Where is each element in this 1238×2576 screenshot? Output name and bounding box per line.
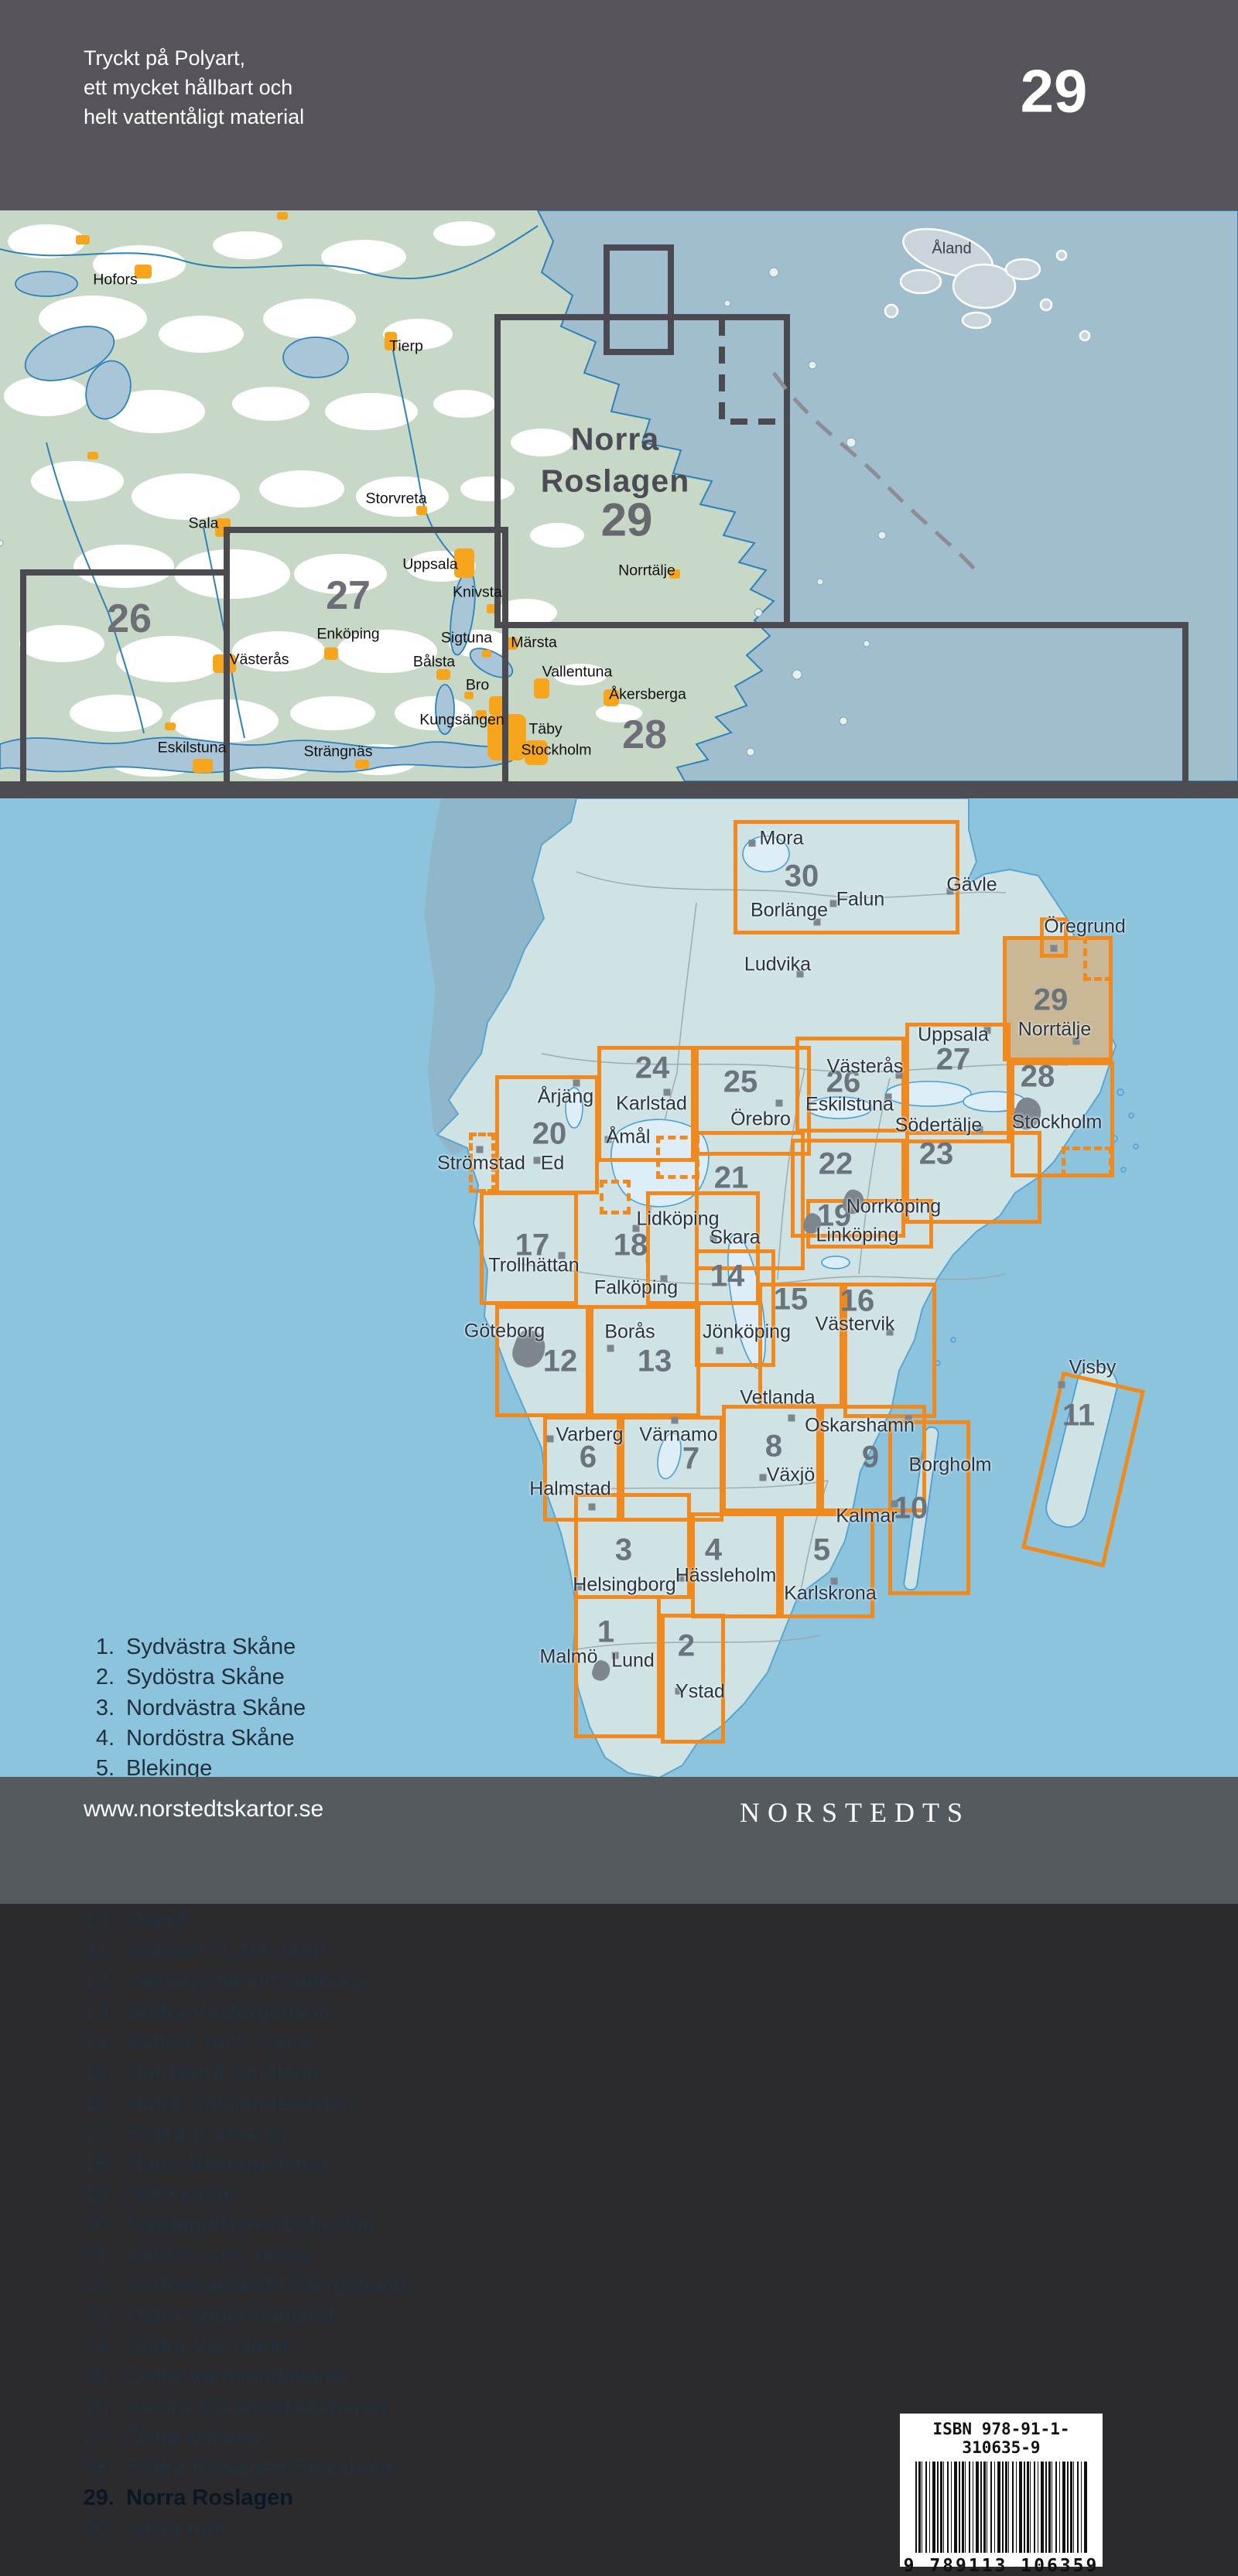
city-label: Göteborg [464,1320,545,1343]
index-item: 22.Södermanland/Östergötland [74,2270,477,2301]
index-number: 15. [74,2060,115,2086]
index-name: Vättern runt, norra [126,2243,308,2268]
index-number: 22. [74,2273,115,2298]
city-marker [1051,945,1058,952]
index-name: Nordvästra Skåne [126,1696,306,1721]
city-label: Uppsala [918,1024,989,1047]
city-label: Trollhättan [488,1255,579,1277]
city-label: Ludvika [744,954,811,976]
index-number: 2. [74,1665,115,1690]
index-item: 30.Siljan runt [74,2514,477,2544]
index-item: 17.Södra Bohuslän [74,2119,477,2149]
coverage-box-21-inset [600,1180,631,1215]
index-name: Göta kanal [126,2181,234,2207]
material-note-line: Tryckt på Polyart, [84,43,304,73]
city-label: Kalmar [836,1505,897,1528]
city-label: Malmö [539,1646,597,1669]
coverage-number: 15 [774,1283,809,1317]
city-label: Öregrund [1044,916,1126,938]
material-note-line: ett mycket hållbart och [84,73,304,102]
city-label: Södertälje [895,1115,983,1137]
city-label: Ystad [675,1681,725,1703]
city-marker [607,1345,614,1352]
coverage-number: 14 [710,1259,745,1294]
index-name: Östra Värmland/Närke [126,2364,350,2390]
city-label: Växjö [767,1464,816,1487]
detail-map: HoforsTierpStorvretaSalaUppsalaNorrtälje… [0,210,1238,781]
city-label: Åmål [607,1126,651,1149]
index-name: Södra Roslagen/Stockholm [126,2455,398,2481]
barcode-image [915,2462,1087,2553]
city-label: Hässleholm [675,1565,777,1587]
coverage-number: 18 [614,1228,648,1263]
city-marker [788,1415,795,1422]
coverage-number: 2 [678,1629,695,1664]
divider-strip [0,781,1238,798]
overview-map: 3029282726252423222120191817161514131211… [0,798,1238,1777]
isbn-block: ISBN 978-91-1-310635-9 9 789113 106359 [900,2414,1103,2567]
index-item: 16.Norra Smålandskusten [74,2088,477,2118]
index-name: Gotland (1:100 000) [126,1939,326,1964]
index-name: Nordöstra Småland [126,2060,320,2086]
index-name: Södra Bohuslän [126,2121,286,2147]
index-item: 24.Södra Värmland [74,2332,477,2362]
index-name: Vättern runt, södra [126,2030,312,2055]
city-marker [547,1436,554,1443]
city-label: Oskarshamn [805,1415,915,1437]
index-item: 15.Nordöstra Småland [74,2058,477,2088]
coverage-number: 28 [1021,1060,1055,1095]
index-name: Sydöstra Skåne [126,1665,285,1690]
city-label: Varberg [556,1424,623,1447]
city-label: Borås [604,1321,655,1344]
index-item: 25.Östra Värmland/Närke [74,2362,477,2392]
index-item: 4.Nordöstra Skåne [74,1724,477,1754]
coverage-number: 23 [919,1137,954,1172]
index-number: 20. [74,2212,115,2238]
coverage-number: 21 [714,1161,749,1196]
index-name: Västra Mälaren/Hjälmaren [126,2395,387,2421]
index-name: Sydvästra Skåne [126,1635,296,1660]
index-number: 29. [74,2485,115,2511]
map-number: 29 [1021,56,1088,127]
index-name: Östra Mälaren [126,2425,268,2451]
city-label: Halmstad [529,1478,611,1501]
index-number: 17. [74,2121,115,2147]
overview-overlays: 3029282726252423222120191817161514131211… [0,798,1238,1777]
coverage-number: 29 [1034,983,1069,1018]
index-item: 1.Sydvästra Skåne [74,1632,477,1662]
index-number: 25. [74,2364,115,2390]
index-number: 14. [74,2030,115,2055]
coverage-number: 27 [936,1043,971,1078]
index-name: Norra Smålandskusten [126,2091,354,2116]
index-number: 18. [74,2151,115,2177]
detail-map-art [0,210,1238,781]
index-item: 11.Gotland (1:100 000) [74,1936,477,1966]
index-number: 13. [74,2000,115,2025]
city-label: Karlstad [616,1093,687,1115]
city-label: Vetlanda [740,1387,815,1409]
city-label: Karlskrona [784,1583,877,1605]
index-item: 21.Vättern runt, norra [74,2240,477,2270]
index-number: 28. [74,2455,115,2481]
index-item: 18.Norra Västergötland [74,2149,477,2179]
coverage-box-29-inset [1083,936,1113,981]
index-number: 12. [74,1969,115,1994]
coverage-number: 12 [543,1344,578,1379]
index-name: Norra Västergötland [126,2151,327,2177]
city-label: Borgholm [909,1454,992,1477]
material-note-line: helt vattentåligt material [84,102,304,132]
index-item: 29.Norra Roslagen [74,2483,477,2513]
index-item: 12.Västergötland/Göteborg [74,1966,477,1997]
coverage-number: 22 [819,1147,853,1182]
index-name: Södra Värmland [126,2334,289,2359]
city-label: Strömstad [437,1153,525,1175]
index-name: Södra Västergötland [126,2000,330,2025]
index-item: 2.Sydöstra Skåne [74,1662,477,1693]
map-index-list: 1.Sydvästra Skåne2.Sydöstra Skåne3.Nordv… [74,1632,477,2544]
city-label: Västerås [827,1056,904,1078]
city-label: Ed [541,1153,565,1175]
index-name: Östra Södermanland [126,2304,333,2329]
city-marker [672,1417,679,1424]
city-label: Jönköping [703,1321,791,1344]
city-marker [534,1157,541,1164]
index-number: 1. [74,1635,115,1660]
index-item: 14.Vättern runt, södra [74,2028,477,2058]
city-label: Borlänge [751,900,828,922]
index-name: Nordöstra Skåne [126,1726,295,1751]
coverage-number: 7 [682,1442,699,1477]
coverage-number: 3 [615,1533,632,1568]
city-label: Falun [836,889,885,911]
coverage-number: 1 [597,1615,614,1650]
top-band: Tryckt på Polyart,ett mycket hållbart oc… [0,0,1238,210]
index-number: 10. [74,1908,115,1934]
index-item: 10.Öland [74,1906,477,1936]
city-label: Gävle [946,874,997,897]
index-name: Dalsland/Norra Bohuslän [126,2212,375,2238]
material-note: Tryckt på Polyart,ett mycket hållbart oc… [84,43,304,132]
city-label: Mora [760,828,804,850]
index-item: 26.Västra Mälaren/Hjälmaren [74,2392,477,2422]
index-name: Västergötland/Göteborg [126,1969,364,1994]
index-item: 23.Östra Södermanland [74,2301,477,2332]
coverage-number: 4 [705,1533,722,1568]
index-number: 24. [74,2334,115,2359]
city-label: Norrköping [846,1196,941,1218]
index-number: 4. [74,1726,115,1751]
index-name: Öland [126,1908,186,1934]
city-label: Stockholm [1012,1112,1103,1134]
city-label: Lund [611,1650,655,1672]
coverage-number: 20 [532,1117,567,1152]
coverage-number: 11 [1062,1399,1095,1433]
city-label: Visby [1069,1357,1117,1379]
index-item: 27.Östra Mälaren [74,2423,477,2453]
coverage-number: 9 [862,1440,879,1475]
index-item: 20.Dalsland/Norra Bohuslän [74,2210,477,2240]
city-label: Falköping [594,1277,678,1300]
isbn-label: ISBN 978-91-1-310635-9 [900,2420,1103,2457]
coverage-box-24-inset [656,1136,699,1179]
city-label: Skara [710,1227,760,1249]
index-number: 21. [74,2243,115,2268]
publisher-url: www.norstedtskartor.se [84,1796,323,1823]
city-label: Årjäng [538,1086,593,1109]
index-number: 26. [74,2395,115,2421]
index-item: 28.Södra Roslagen/Stockholm [74,2453,477,2483]
index-item: 3.Nordvästra Skåne [74,1693,477,1724]
coverage-number: 5 [813,1533,830,1568]
index-item: 19.Göta kanal [74,2179,477,2209]
index-number: 30. [74,2516,115,2542]
city-label: Västervik [816,1314,895,1336]
index-number: 19. [74,2181,115,2207]
coverage-number: 8 [765,1430,782,1464]
city-label: Lidköping [636,1208,719,1231]
index-number: 16. [74,2091,115,2116]
city-label: Örebro [730,1109,791,1131]
city-marker [716,1348,723,1355]
city-label: Värnamo [639,1424,717,1447]
index-name: Södermanland/Östergötland [126,2273,407,2298]
index-number: 27. [74,2425,115,2451]
index-name: Norra Roslagen [126,2485,293,2511]
index-name: Siljan runt [126,2516,226,2542]
city-marker [760,1474,767,1481]
city-marker [589,1504,596,1511]
index-number: 11. [74,1939,115,1964]
coverage-number: 30 [785,859,819,894]
index-number: 23. [74,2304,115,2329]
city-label: Eskilstuna [805,1094,894,1116]
city-marker [1058,1382,1065,1389]
coverage-number: 10 [894,1491,929,1526]
index-number: 3. [74,1696,115,1721]
coverage-number: 24 [635,1051,670,1086]
city-label: Norrtälje [1018,1019,1091,1041]
city-label: Helsingborg [573,1574,675,1597]
coverage-number: 13 [638,1344,672,1379]
index-item: 13.Södra Västergötland [74,1997,477,2028]
isbn-digits: 9 789113 106359 [900,2556,1103,2576]
city-label: Linköping [816,1225,898,1247]
coverage-number: 25 [723,1065,758,1100]
city-marker [776,1100,783,1107]
coverage-box-28-inset [1062,1146,1113,1177]
city-marker [749,840,756,847]
publisher-brand: NORSTEDTS [740,1796,970,1829]
